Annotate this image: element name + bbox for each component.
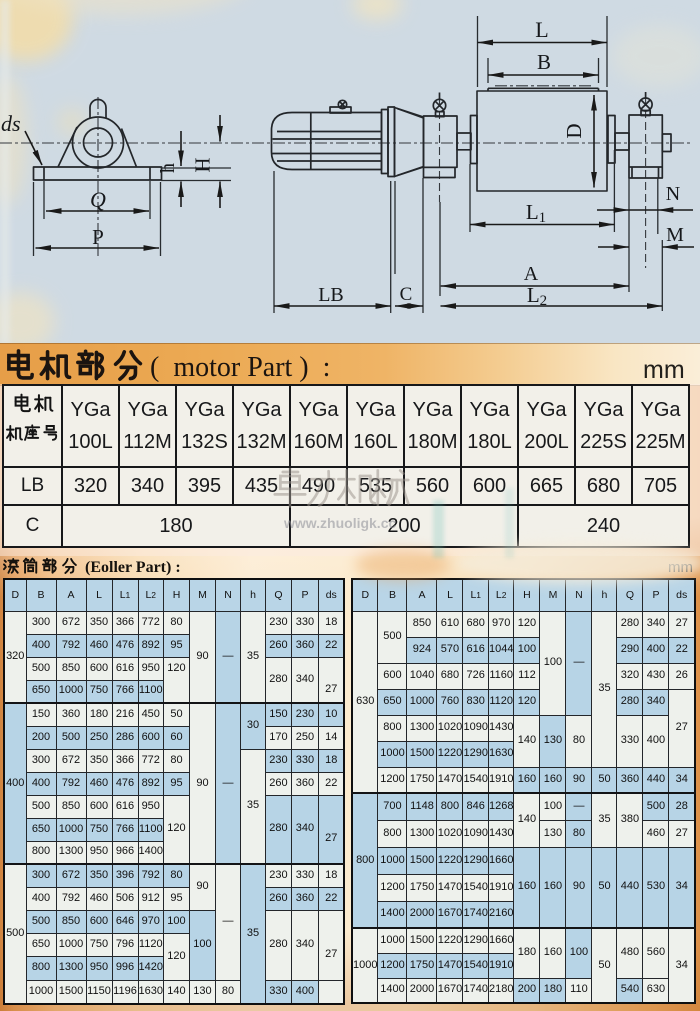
svg-text:B: B xyxy=(537,50,551,74)
svg-text:C: C xyxy=(400,284,413,305)
svg-text:Q: Q xyxy=(90,187,106,212)
svg-text:( motor Part ) :: ( motor Part ) : xyxy=(150,352,330,383)
svg-text:L1: L1 xyxy=(526,200,546,226)
svg-text:LB: LB xyxy=(318,284,344,306)
svg-text:A: A xyxy=(524,263,539,285)
svg-text:H: H xyxy=(191,157,215,172)
svg-text:ds: ds xyxy=(1,111,21,136)
svg-text:L2: L2 xyxy=(527,283,547,309)
svg-text:h: h xyxy=(157,163,179,173)
svg-text:mm: mm xyxy=(643,356,685,384)
svg-text:D: D xyxy=(562,123,586,138)
svg-text:N: N xyxy=(666,183,680,205)
svg-text:P: P xyxy=(92,225,104,249)
svg-text:www.zhuoligk.cc: www.zhuoligk.cc xyxy=(283,515,396,531)
svg-text:L: L xyxy=(535,17,548,42)
svg-text:M: M xyxy=(666,224,684,246)
svg-text:(Eoller Part) :: (Eoller Part) : xyxy=(85,559,181,576)
